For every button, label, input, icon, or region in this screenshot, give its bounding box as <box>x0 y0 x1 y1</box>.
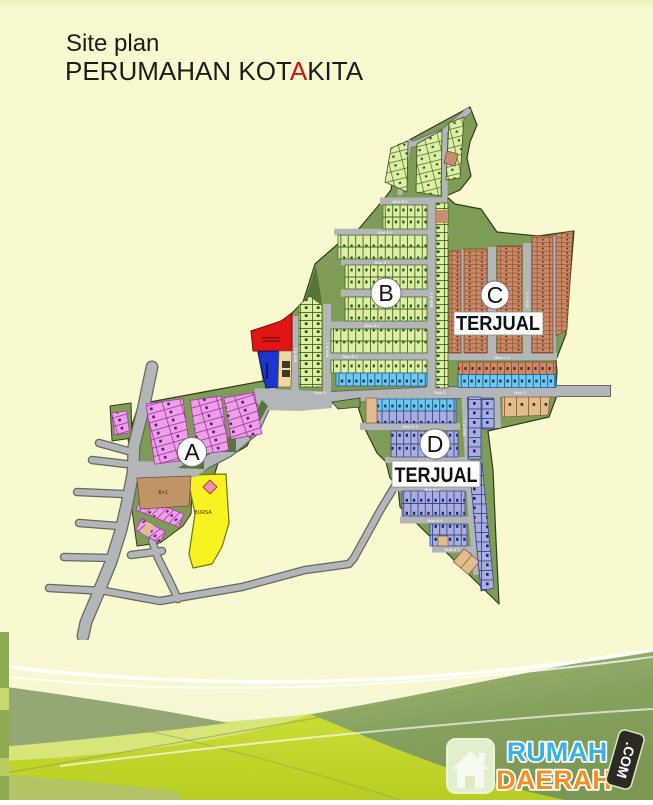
svg-text:TERJUAL: TERJUAL <box>395 464 478 487</box>
svg-text:BURSA: BURSA <box>194 510 212 516</box>
svg-text:Blok B 5: Blok B 5 <box>393 199 409 204</box>
svg-text:Blok D: Blok D <box>514 390 526 395</box>
svg-text:Blok B 2: Blok B 2 <box>325 342 330 358</box>
svg-text:B: B <box>378 280 393 306</box>
svg-text:Blok C 4: Blok C 4 <box>494 355 510 360</box>
svg-text:Blok D 3: Blok D 3 <box>462 420 467 436</box>
svg-text:Site plan: Site plan <box>66 30 159 57</box>
svg-text:Blok B 7: Blok B 7 <box>445 547 461 552</box>
svg-text:D: D <box>427 431 444 457</box>
svg-text:B+1: B+1 <box>158 490 167 496</box>
svg-text:TERJUAL: TERJUAL <box>456 313 540 335</box>
svg-text:DAERAH: DAERAH <box>496 765 612 795</box>
svg-text:PERUMAHAN KOTAKITA: PERUMAHAN KOTAKITA <box>65 56 364 86</box>
svg-text:Blok B 3: Blok B 3 <box>429 292 434 308</box>
svg-text:A: A <box>184 439 200 465</box>
svg-text:Blok D: Blok D <box>434 390 446 395</box>
svg-text:Blok B 4: Blok B 4 <box>425 487 441 492</box>
svg-text:Blok B 1: Blok B 1 <box>293 347 298 363</box>
svg-text:Blok D: Blok D <box>314 390 326 395</box>
svg-text:RUMAH: RUMAH <box>507 737 608 767</box>
svg-text:Blok B 6: Blok B 6 <box>378 230 394 235</box>
svg-text:Blok C 3: Blok C 3 <box>525 292 530 308</box>
svg-text:Blok D 4: Blok D 4 <box>402 424 418 429</box>
svg-text:C: C <box>487 282 504 308</box>
svg-text:Blok B 9: Blok B 9 <box>365 323 381 328</box>
svg-text:Blok B 4: Blok B 4 <box>343 354 359 359</box>
svg-text:Blok B 7: Blok B 7 <box>375 260 391 265</box>
svg-text:Blok B 6: Blok B 6 <box>428 518 444 523</box>
